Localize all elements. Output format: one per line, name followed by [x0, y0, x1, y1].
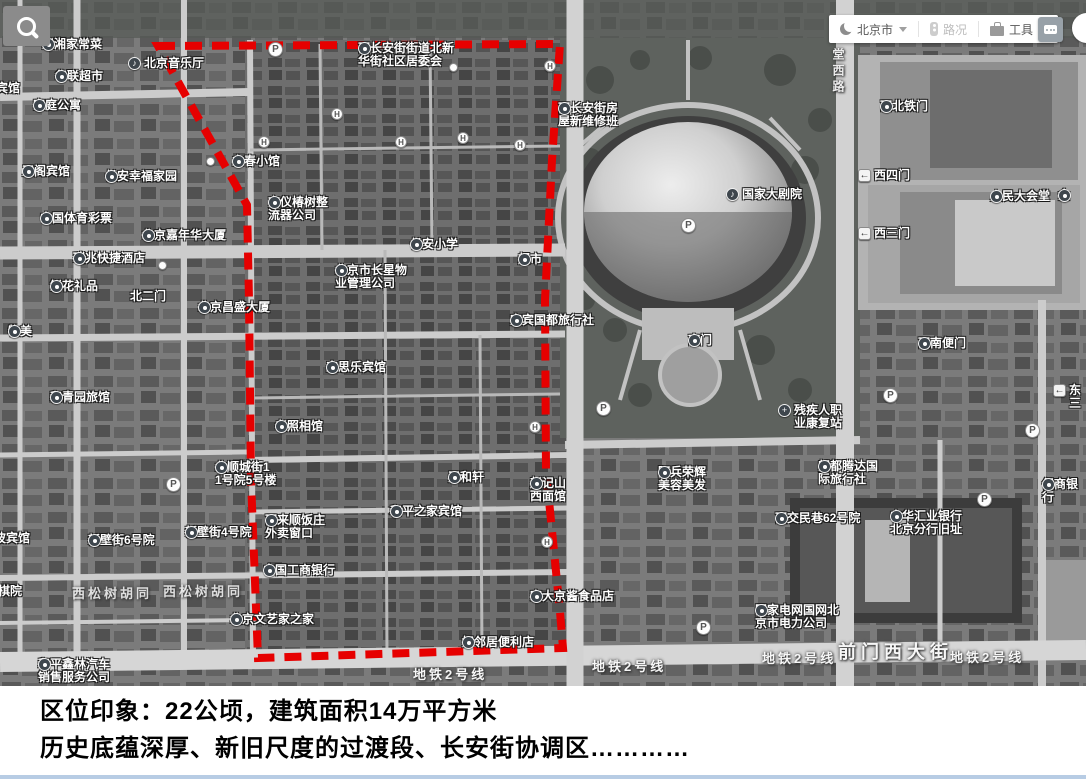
poi-marker-icon	[990, 190, 1003, 203]
map-poi-label: 北京音乐厅	[144, 57, 204, 70]
map-poi-40[interactable]: 南门	[688, 334, 712, 347]
poi-marker-icon	[530, 477, 543, 490]
map-poi-25[interactable]: 长安小学	[410, 238, 458, 251]
map-poi-14[interactable]: 和青园旅馆	[50, 391, 110, 404]
traffic-toggle-label: 路况	[943, 21, 967, 38]
map-poi-51[interactable]: 金	[1058, 189, 1070, 202]
map-poi-label: 国家大剧院	[742, 188, 802, 201]
map-poi-42[interactable]: 阿兵荣辉 美容美发	[658, 466, 706, 492]
map-poi-28[interactable]: 来思乐宾馆	[326, 361, 386, 374]
parking-marker-icon[interactable]: P	[596, 401, 611, 416]
map-poi-21[interactable]: 西长安街街道北新 华街社区居委会	[358, 42, 454, 68]
poi-marker-icon	[880, 100, 893, 113]
street-label: 西松树胡同	[72, 583, 152, 602]
map-poi-47[interactable]: 保商银行	[1042, 478, 1086, 504]
poi-marker-icon	[1042, 478, 1055, 491]
poi-marker-icon	[410, 238, 423, 251]
poi-marker-icon	[88, 534, 101, 547]
poi-marker-icon	[50, 280, 63, 293]
poi-marker-icon	[390, 505, 403, 518]
hotel-marker-icon[interactable]: H	[457, 132, 469, 144]
poi-marker-icon	[105, 170, 118, 183]
poi-marker-icon	[510, 314, 523, 327]
street-label: 西松树胡同	[163, 581, 243, 600]
street-label: 堂西路	[830, 48, 847, 96]
map-poi-7[interactable]: 中国体育彩票	[40, 212, 112, 225]
map-poi-34[interactable]: 中国工商银行	[263, 564, 335, 577]
parking-marker-icon[interactable]: P	[1025, 423, 1040, 438]
traffic-light-icon	[930, 22, 938, 36]
poi-marker-icon	[755, 604, 768, 617]
map-poi-0[interactable]: 川湘家常菜	[42, 38, 102, 51]
map-poi-44[interactable]: 西交民巷62号院	[775, 512, 860, 525]
map-poi-label: 西长安街街道北新 华街社区居委会	[358, 42, 454, 68]
poi-marker-icon	[22, 165, 35, 178]
traffic-toggle[interactable]: 路况	[919, 15, 978, 43]
tools-menu-label: 工具	[1009, 21, 1033, 38]
map-poi-1[interactable]: ♪北京音乐厅	[128, 57, 204, 70]
map-canvas[interactable]: 川湘家常菜♪北京音乐厅华联超市苑宾馆家庭公寓玉阁宾馆长安幸福家园中国体育彩票北京…	[0, 0, 1086, 686]
poi-marker-icon	[558, 102, 571, 115]
poi-marker-icon	[1058, 189, 1071, 202]
poi-marker-icon	[263, 564, 276, 577]
map-poi-8[interactable]: 北京嘉年华大厦	[142, 229, 226, 242]
arrow-marker-icon: ←	[1053, 384, 1066, 397]
poi-marker-icon	[215, 461, 228, 474]
caption-line-1: 区位印象：22公顷，建筑面积14万平方米	[40, 693, 1086, 730]
map-poi-43[interactable]: 朗都腾达国 际旅行社	[818, 460, 878, 486]
map-poi-49[interactable]: ←西四门	[858, 169, 910, 182]
map-poi-29[interactable]: 老照相馆	[275, 420, 323, 433]
poi-marker-icon	[142, 229, 155, 242]
hotel-marker-icon[interactable]: H	[529, 421, 541, 433]
poi-marker-icon	[775, 512, 788, 525]
parking-marker-icon[interactable]: P	[977, 492, 992, 507]
map-poi-label: 东三	[1069, 384, 1086, 410]
poi-marker-icon	[265, 514, 278, 527]
map-poi-label: 西四门	[874, 169, 910, 182]
map-poi-4[interactable]: 家庭公寓	[33, 99, 81, 112]
toolbox-icon	[990, 26, 1004, 36]
parking-marker-icon[interactable]: P	[166, 477, 181, 492]
map-poi-38[interactable]: 西长安街房 屋新维修班	[558, 102, 618, 128]
street-label: 地铁2号线	[762, 648, 836, 667]
map-poi-17[interactable]: 新壁街6号院	[88, 534, 155, 547]
poi-marker-icon	[55, 70, 68, 83]
map-poi-27[interactable]: 宜宾国都旅行社	[510, 314, 594, 327]
street-label: 地铁2号线	[592, 656, 666, 675]
poi-marker-icon	[890, 510, 903, 523]
poi-marker-icon	[232, 155, 245, 168]
parking-marker-icon[interactable]: P	[681, 218, 696, 233]
message-bubble-icon	[1044, 25, 1057, 34]
map-poi-label: 苑宾馆	[0, 82, 20, 95]
map-poi-19[interactable]: 京棋院	[0, 585, 22, 598]
poi-marker-icon	[50, 391, 63, 404]
hotel-marker-icon[interactable]: H	[258, 136, 270, 148]
map-poi-23[interactable]: 京仪椿树整 流器公司	[268, 196, 328, 222]
poi-marker-icon	[335, 264, 348, 277]
street-label: 前门西大街	[838, 638, 953, 664]
cross-marker-icon: +	[778, 404, 791, 417]
map-poi-18[interactable]: 新壁街4号院	[185, 526, 252, 539]
map-poi-16[interactable]: 宁波宾馆	[0, 532, 30, 545]
search-icon	[17, 17, 36, 36]
map-poi-22[interactable]: 立春小馆	[232, 155, 280, 168]
poi-marker-icon	[33, 99, 46, 112]
map-poi-9[interactable]: 瑞兆快捷酒店	[73, 252, 145, 265]
map-poi-52[interactable]: ←西三门	[858, 227, 910, 240]
map-poi-37[interactable]: 好邻居便利店	[462, 636, 534, 649]
hotel-marker-icon[interactable]: H	[331, 108, 343, 120]
map-toolbar: 北京市 路况 工具	[829, 15, 1058, 43]
hotel-marker-icon[interactable]: H	[395, 136, 407, 148]
caption-line-2: 历史底蕴深厚、新旧尺度的过渡段、长安街协调区…………	[40, 730, 1086, 767]
map-poi-24[interactable]: 北京市长星物 业管理公司	[335, 264, 407, 290]
hotel-marker-icon[interactable]: H	[544, 60, 556, 72]
map-poi-31[interactable]: 赵记山 西面馆	[530, 477, 566, 503]
parking-marker-icon[interactable]: P	[883, 388, 898, 403]
map-poi-54[interactable]: ←东三	[1053, 384, 1086, 410]
poi-marker-icon	[918, 337, 931, 350]
poi-marker-icon	[73, 252, 86, 265]
map-poi-46[interactable]: 中华汇业银行 北京分行旧址	[890, 510, 962, 536]
stop-marker-icon[interactable]	[449, 63, 458, 72]
poi-marker-icon	[818, 460, 831, 473]
poi-marker-icon	[448, 471, 461, 484]
hotel-marker-icon[interactable]: H	[541, 536, 553, 548]
poi-marker-icon	[658, 466, 671, 479]
city-selector[interactable]: 北京市	[829, 15, 918, 43]
map-poi-label: 宁波宾馆	[0, 532, 30, 545]
poi-marker-icon	[268, 196, 281, 209]
street-label: 地铁2号线	[950, 647, 1024, 666]
caption-band: 区位印象：22公顷，建筑面积14万平方米 历史底蕴深厚、新旧尺度的过渡段、长安街…	[0, 686, 1086, 779]
map-poi-label: 残疾人职 业康复站	[794, 404, 842, 430]
poi-marker-icon	[358, 42, 371, 55]
stop-marker-icon[interactable]	[158, 261, 167, 270]
music-marker-icon: ♪	[128, 57, 141, 70]
feedback-button[interactable]	[1038, 17, 1063, 42]
poi-marker-icon	[462, 636, 475, 649]
map-poi-36[interactable]: 宏大京酱食品店	[530, 590, 614, 603]
poi-marker-icon	[185, 526, 198, 539]
poi-marker-icon	[688, 334, 701, 347]
poi-marker-icon	[518, 253, 531, 266]
poi-marker-icon	[530, 590, 543, 603]
map-poi-33[interactable]: 西来顺饭庄 外卖窗口	[265, 514, 325, 540]
map-labels-layer: 川湘家常菜♪北京音乐厅华联超市苑宾馆家庭公寓玉阁宾馆长安幸福家园中国体育彩票北京…	[0, 0, 1086, 686]
poi-marker-icon	[326, 361, 339, 374]
map-poi-13[interactable]: 物美	[8, 325, 32, 338]
map-poi-41[interactable]: +残疾人职 业康复站	[778, 404, 842, 430]
search-button[interactable]	[3, 6, 50, 46]
map-poi-50[interactable]: 人民大会堂	[990, 190, 1050, 203]
arrow-marker-icon: ←	[858, 169, 871, 182]
map-poi-39[interactable]: ♪国家大剧院	[726, 188, 802, 201]
map-poi-35[interactable]: 北京文艺家之家	[230, 613, 314, 626]
poi-marker-icon	[198, 301, 211, 314]
city-selector-label: 北京市	[857, 21, 893, 38]
hotel-marker-icon[interactable]: H	[514, 139, 526, 151]
poi-marker-icon	[230, 613, 243, 626]
stop-marker-icon[interactable]	[206, 157, 215, 166]
map-poi-10[interactable]: 鲜花礼品	[50, 280, 98, 293]
parking-marker-icon[interactable]: P	[696, 620, 711, 635]
map-poi-label: 北二门	[130, 290, 166, 303]
map-poi-48[interactable]: 西北铁门	[880, 100, 928, 113]
map-poi-32[interactable]: 和平之家宾馆	[390, 505, 462, 518]
poi-marker-icon	[38, 658, 51, 671]
map-poi-30[interactable]: 天和轩	[448, 471, 484, 484]
arrow-marker-icon: ←	[858, 227, 871, 240]
map-poi-11[interactable]: 北二门	[130, 290, 166, 303]
parking-marker-icon[interactable]: P	[268, 42, 283, 57]
street-label: 地铁2号线	[413, 664, 487, 683]
map-poi-label: 京棋院	[0, 585, 22, 598]
map-poi-12[interactable]: 北京昌盛大厦	[198, 301, 270, 314]
map-poi-6[interactable]: 长安幸福家园	[105, 170, 177, 183]
map-poi-45[interactable]: 国家电网国网北 京市电力公司	[755, 604, 839, 630]
map-poi-53[interactable]: 西南便门	[918, 337, 966, 350]
moon-icon	[840, 23, 852, 35]
map-poi-26[interactable]: 超市	[518, 253, 542, 266]
map-poi-label: 西三门	[874, 227, 910, 240]
map-poi-5[interactable]: 玉阁宾馆	[22, 165, 70, 178]
poi-marker-icon	[40, 212, 53, 225]
music-marker-icon: ♪	[726, 188, 739, 201]
map-poi-15[interactable]: 北顺城街1 1号院5号楼	[215, 461, 276, 487]
poi-marker-icon	[8, 325, 21, 338]
map-poi-3[interactable]: 苑宾馆	[0, 82, 20, 95]
poi-marker-icon	[275, 420, 288, 433]
map-poi-2[interactable]: 华联超市	[55, 70, 103, 83]
map-poi-20[interactable]: 和平鑫林汽车 销售服务公司	[38, 658, 110, 684]
chevron-down-icon	[899, 27, 907, 32]
